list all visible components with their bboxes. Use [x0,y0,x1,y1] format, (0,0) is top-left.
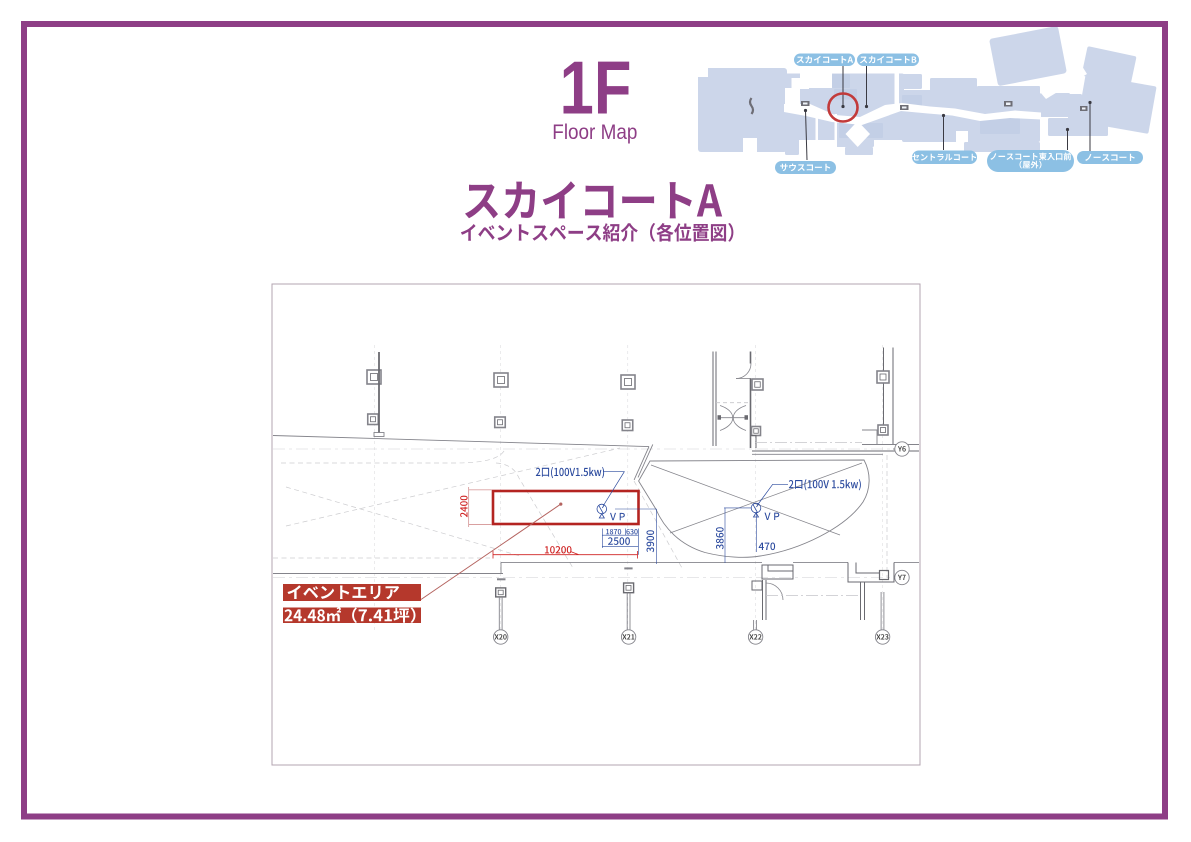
svg-text:1F: 1F [560,46,632,130]
svg-text:Floor Map: Floor Map [552,121,637,144]
